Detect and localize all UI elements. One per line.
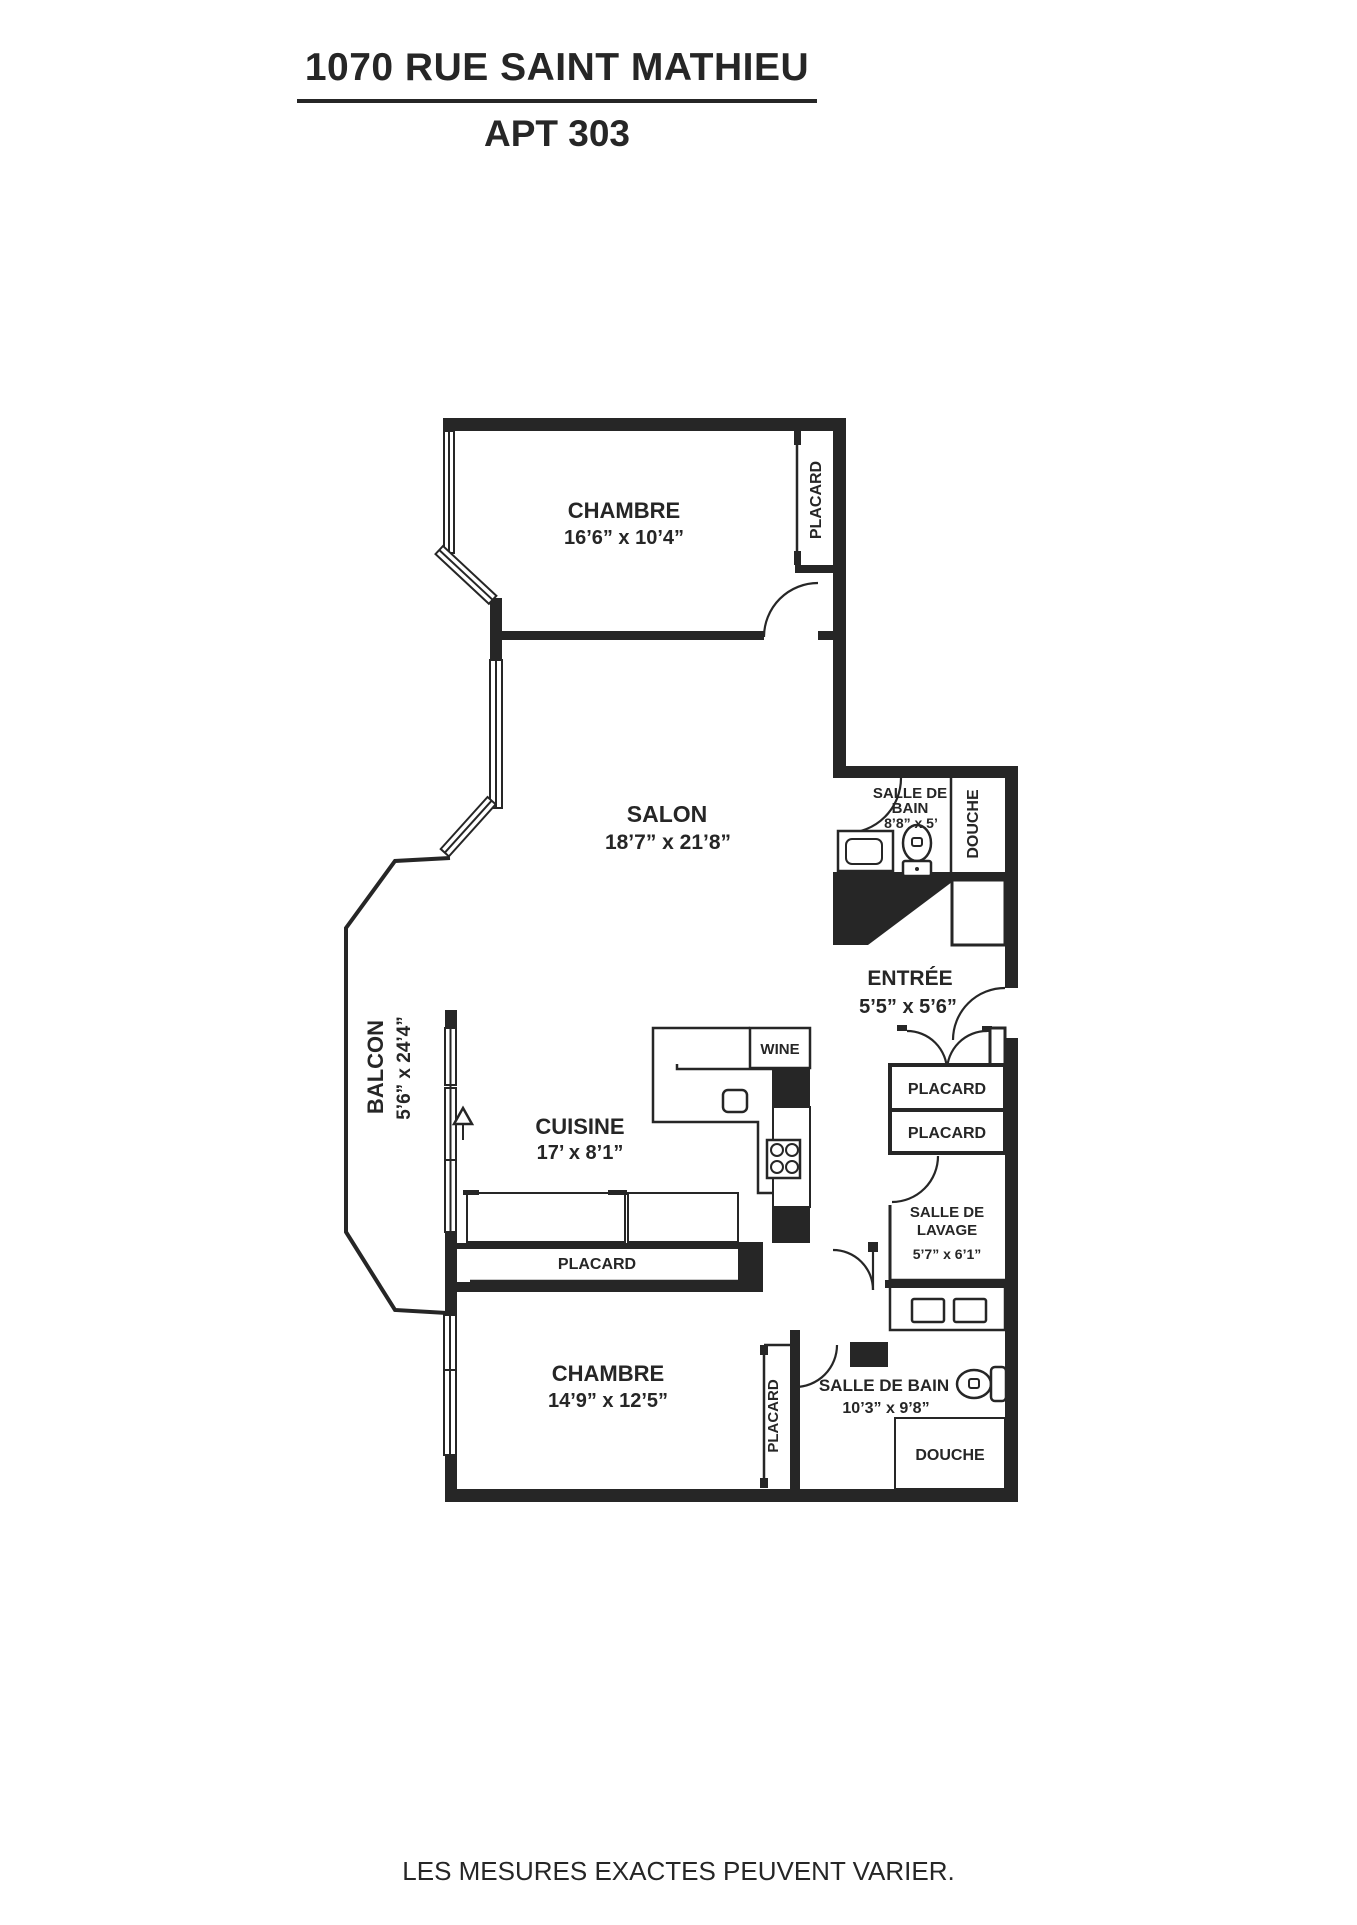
floorplan: CHAMBRE 16’6” x 10’4” PLACARD SALON 18’7… [0, 0, 1357, 1920]
toilet-tank-icon [991, 1367, 1006, 1401]
douche1-label: DOUCHE [965, 789, 982, 859]
jamb-lavage-door [868, 1242, 878, 1252]
page-title: 1070 RUE SAINT MATHIEU [297, 44, 817, 103]
chambre1-name: CHAMBRE [568, 498, 680, 523]
entree-dims: 5’5” x 5’6” [859, 996, 957, 1018]
wall-chambre1-bottom-r [818, 631, 846, 640]
kitchen-counters [467, 1028, 810, 1242]
window-angled-top [435, 546, 496, 604]
counter-lower-right [628, 1193, 738, 1242]
entree-name: ENTRÉE [867, 967, 952, 990]
wall-chambre2-top [445, 1282, 763, 1292]
balcon-name: BALCON [363, 1020, 388, 1114]
wall-kitchen-block-a [772, 1069, 810, 1108]
chambre1-dims: 16’6” x 10’4” [564, 527, 684, 549]
placard-chambre1-label: PLACARD [808, 461, 825, 539]
wall-left-b2-low [445, 1455, 457, 1502]
wall-bath1-top [833, 766, 1018, 778]
disclaimer-text: LES MESURES EXACTES PEUVENT VARIER. [0, 1856, 1357, 1887]
door-lavage-lower [833, 1250, 873, 1290]
bain1-dims: 8’8” x 5’ [884, 815, 938, 831]
toilet-icon [957, 1370, 991, 1398]
cuisine-name: CUISINE [535, 1114, 624, 1139]
bain2-dims: 10’3” x 9’8” [842, 1400, 929, 1417]
bain1-fixtures [838, 825, 931, 876]
wine-label: WINE [760, 1041, 799, 1058]
bain2-name: SALLE DE BAIN [819, 1376, 949, 1395]
jamb-placard1-top [794, 431, 801, 445]
washer-icon [912, 1299, 944, 1322]
placard-entree-1-label: PLACARD [908, 1081, 986, 1098]
toilet-dot [915, 867, 919, 871]
wall-bath2-chunk [850, 1342, 888, 1367]
wall-right-upper [833, 418, 846, 778]
wall-kitchen-block-b [772, 1207, 810, 1243]
closet-under-douche [952, 880, 1005, 945]
jamb-placard1-bot [794, 551, 801, 565]
window-angled-bottom [441, 797, 496, 856]
page-subtitle: APT 303 [0, 111, 1114, 157]
lavage-name-line1: SALLE DE [910, 1204, 984, 1221]
sink-icon [723, 1090, 747, 1112]
salon-name: SALON [627, 801, 708, 827]
wall-top [443, 418, 846, 431]
outer-walls [443, 418, 1018, 1502]
wall-chambre1-bottom [497, 631, 764, 640]
placard-entree-2-label: PLACARD [908, 1125, 986, 1142]
counter-lower-left [467, 1193, 625, 1242]
partitions [470, 443, 1005, 1482]
dryer-icon [954, 1299, 986, 1322]
chambre2-name: CHAMBRE [552, 1361, 664, 1386]
balcon-dims: 5’6” x 24’4” [394, 1016, 415, 1120]
placard-cuisine-label: PLACARD [558, 1256, 636, 1273]
jamb-closet-left [897, 1025, 907, 1031]
wall-bottom [445, 1489, 1018, 1502]
lavage-name-line2: LAVAGE [917, 1222, 977, 1239]
wall-placardk-top [455, 1243, 738, 1249]
title-block: 1070 RUE SAINT MATHIEU APT 303 [0, 44, 1114, 157]
wall-placard1-bottom [795, 565, 846, 573]
douche2-label: DOUCHE [915, 1447, 985, 1464]
wall-left-joint [490, 598, 502, 662]
placard-chambre2-label: PLACARD [765, 1379, 782, 1452]
chambre2-dims: 14’9” x 12’5” [548, 1390, 668, 1412]
wall-entree-angled [833, 872, 952, 945]
wall-placard2-right [790, 1330, 800, 1489]
cuisine-dims: 17’ x 8’1” [537, 1142, 624, 1164]
wall-jog [990, 1028, 1005, 1065]
door-chambre1 [764, 583, 818, 637]
wall-right-mid [1005, 766, 1018, 988]
lavage-dims: 5’7” x 6’1” [913, 1246, 982, 1262]
door-lavage-upper [892, 1156, 938, 1202]
salon-dims: 18’7” x 21’8” [605, 831, 731, 854]
